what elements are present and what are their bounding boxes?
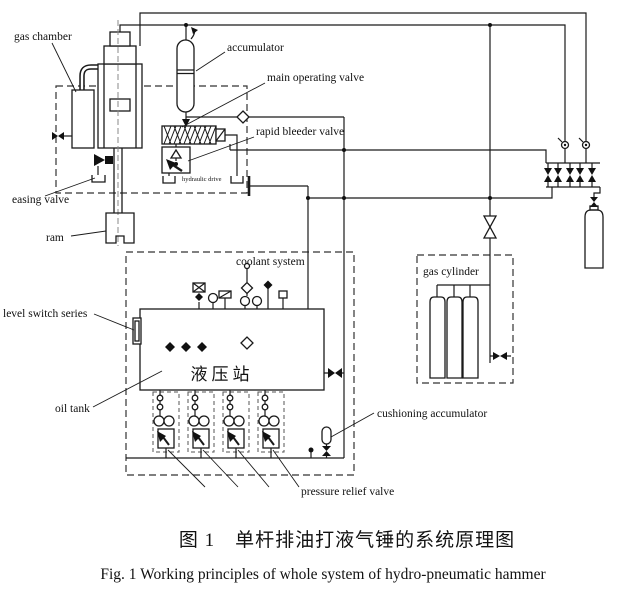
caption-english: Fig. 1 Working principles of whole syste… [100, 566, 546, 583]
drain-right [231, 176, 243, 183]
pump-unit-2 [188, 390, 214, 458]
oil-tank-label: oil tank [55, 403, 90, 415]
hammer-assembly [52, 20, 142, 246]
pressure-gauge-small [309, 448, 314, 453]
gas-cylinder-label: gas cylinder [423, 266, 479, 278]
pressure-gauge-left [558, 138, 569, 149]
figure-canvas: hydraulic drive 液压站 [0, 0, 620, 596]
pressure-relief-valve-label: pressure relief valve [301, 486, 394, 498]
charge-valve [490, 352, 511, 360]
ram-block [106, 213, 134, 243]
captions: 图 1 单杆排油打液气锤的系统原理图 Fig. 1 Working princi… [100, 529, 546, 583]
pressure-gauge-right [579, 138, 590, 149]
tank-top-fittings [193, 264, 287, 310]
cushioning-accumulator-label: cushioning accumulator [377, 408, 487, 420]
manifold-valve-row [544, 163, 596, 187]
level-switch-series-label: level switch series [3, 308, 88, 320]
pump-unit-1 [153, 390, 179, 458]
caption-chinese: 图 1 单杆排油打液气锤的系统原理图 [179, 529, 515, 551]
oil-tank-unit: 液压站 [133, 264, 344, 391]
cylinder-cap-lower [104, 46, 136, 64]
ram-label: ram [46, 232, 64, 244]
main-operating-valve-label: main operating valve [267, 72, 364, 84]
rapid-bleeder-valve-label: rapid bleeder valve [256, 126, 344, 138]
gas-chamber-label: gas chamber [14, 31, 72, 43]
tank-outlet-valve [324, 368, 344, 378]
easing-valve-label: easing valve [12, 194, 69, 206]
pump-unit-3 [223, 390, 249, 458]
gas-bottle [585, 187, 603, 268]
easing-valve-symbol [92, 154, 113, 182]
drain-left [163, 176, 175, 183]
cushioning-accumulator-symbol [309, 427, 332, 458]
schematic-diagram: hydraulic drive 液压站 [0, 0, 620, 596]
gas-cylinder-bank [430, 216, 511, 378]
pump-unit-4 [258, 390, 284, 458]
gas-charge-valve [52, 132, 72, 140]
cylinder-cap-upper [110, 32, 130, 46]
valve-manifold [544, 138, 603, 268]
level-switch [133, 318, 141, 344]
accumulator-label: accumulator [227, 42, 284, 54]
check-valve [484, 216, 496, 238]
coolant-system-label: coolant system [236, 256, 305, 268]
accumulator-vessel [177, 27, 198, 127]
gas-chamber-vessel [72, 90, 94, 148]
piston [110, 99, 130, 111]
hydraulic-station-label: 液压站 [191, 365, 254, 384]
hydraulic-drive-label: hydraulic drive [182, 176, 222, 183]
